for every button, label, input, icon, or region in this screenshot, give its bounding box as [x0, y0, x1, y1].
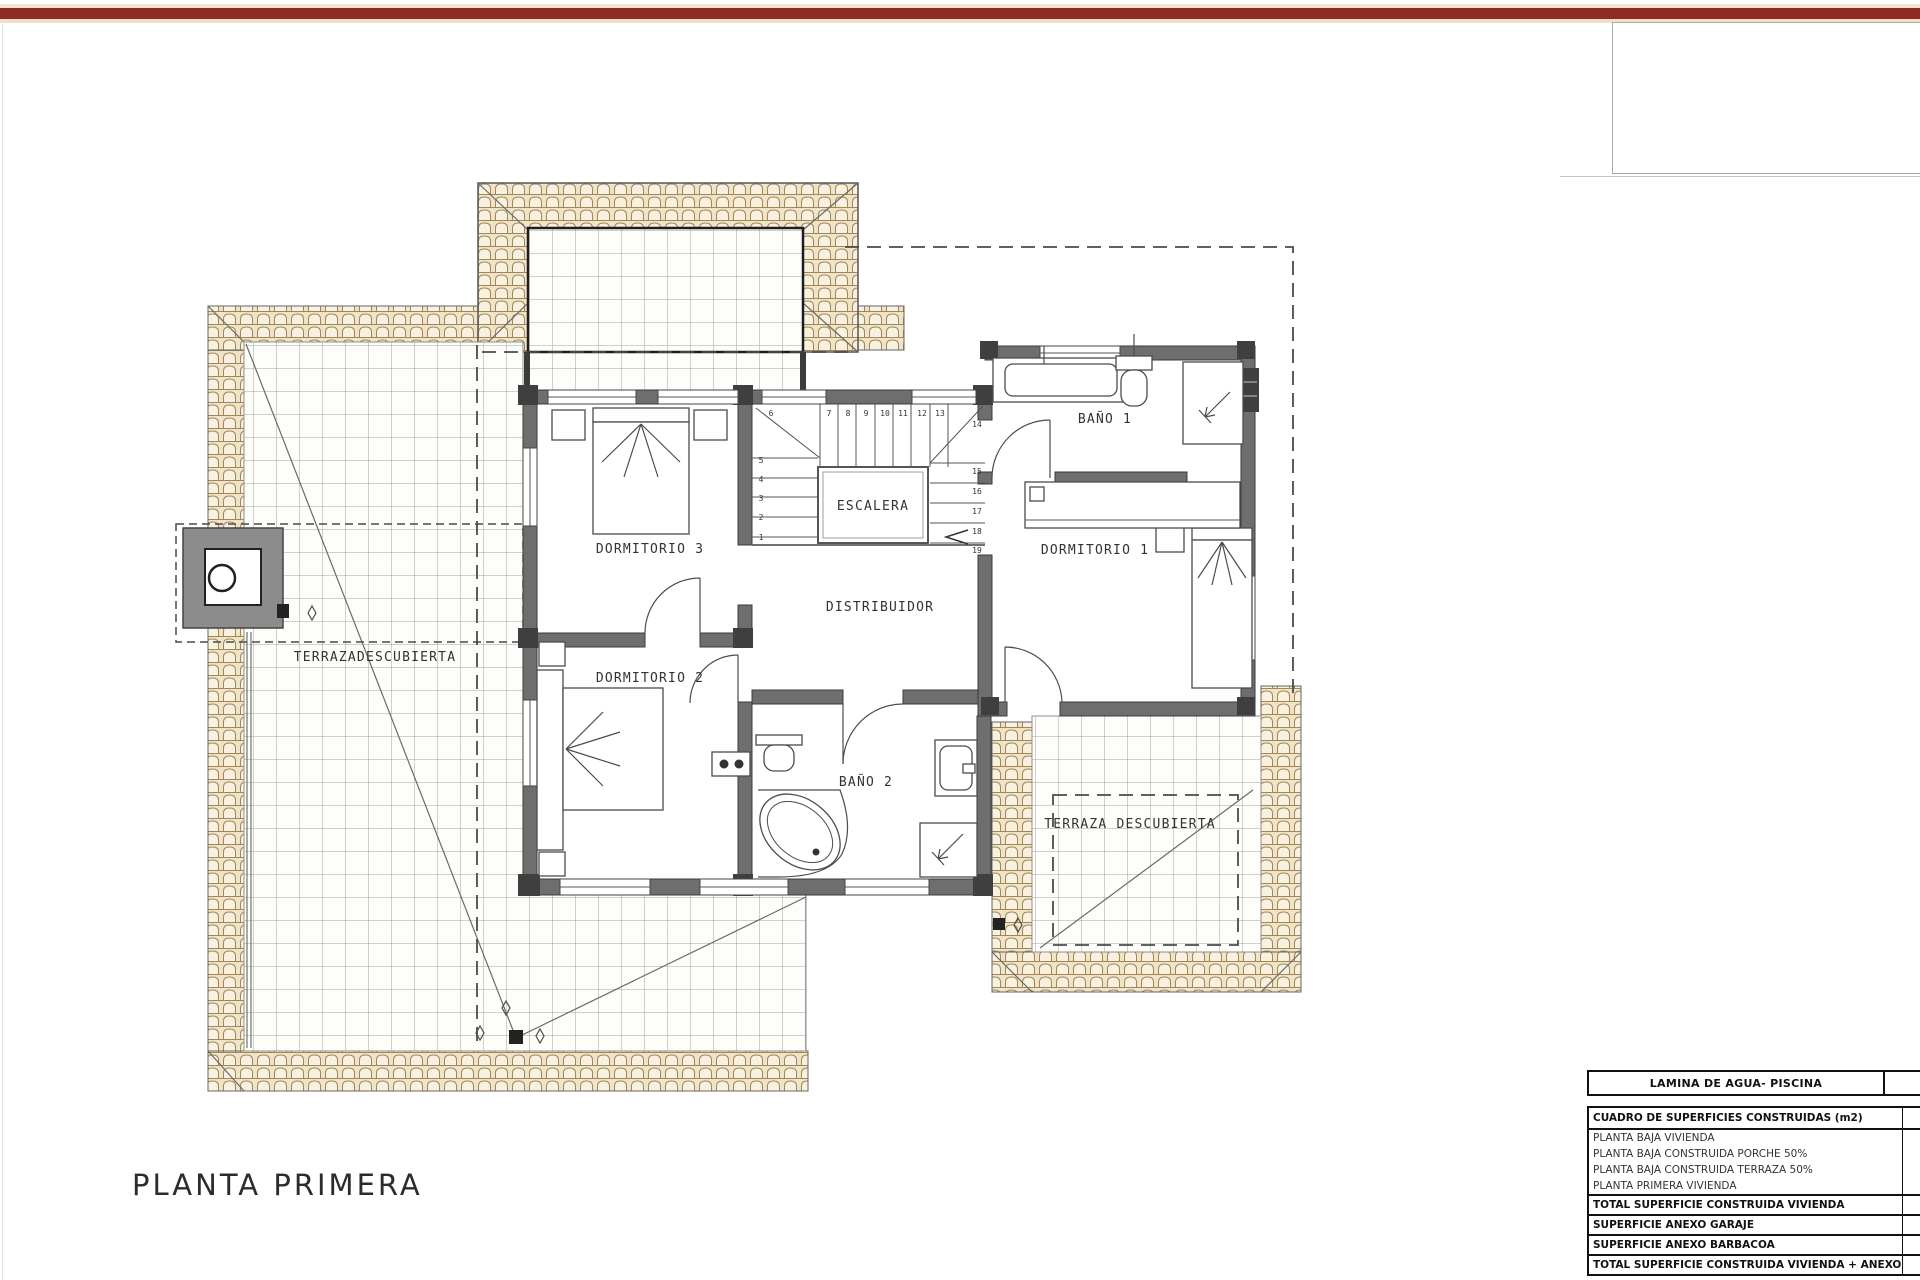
nightstand — [1156, 526, 1184, 552]
step-number: 7 — [827, 409, 832, 418]
table-row-value — [1903, 1195, 1920, 1215]
table-row-value — [1903, 1146, 1920, 1162]
table-row-value — [1903, 1255, 1920, 1275]
step-number: 11 — [898, 409, 908, 418]
pool-surface-table: LAMINA DE AGUA- PISCINA — [1587, 1070, 1920, 1096]
bed-headboard — [1192, 528, 1252, 540]
sink-bowl — [1005, 364, 1117, 396]
built-surfaces-table: CUADRO DE SUPERFICIES CONSTRUIDAS (m2) P… — [1587, 1106, 1920, 1276]
step-number: 8 — [846, 409, 851, 418]
surfaces-header-value — [1903, 1107, 1920, 1129]
table-row-label: PLANTA BAJA VIVIENDA — [1588, 1129, 1903, 1146]
step-number: 16 — [972, 487, 982, 496]
step-number: 5 — [759, 456, 764, 465]
table-row-label: PLANTA BAJA CONSTRUIDA PORCHE 50% — [1588, 1146, 1903, 1162]
staircase: 1 2 3 4 5 6 7 8 9 10 11 12 13 14 15 16 1… — [752, 404, 985, 555]
room-label-dormitorio-2: DORMITORIO 2 — [596, 671, 704, 686]
shower — [920, 823, 977, 877]
room-label-terraza-izquierda: TERRAZADESCUBIERTA — [294, 650, 456, 665]
room-label-dormitorio-1: DORMITORIO 1 — [1041, 543, 1149, 558]
wardrobe — [1025, 482, 1240, 528]
drain-right — [993, 918, 1005, 930]
table-row-label: TOTAL SUPERFICIE CONSTRUIDA VIVIENDA — [1588, 1195, 1903, 1215]
bed — [563, 688, 663, 810]
step-number: 1 — [759, 533, 764, 542]
bathtub — [745, 779, 855, 886]
toilet-bowl — [764, 745, 794, 771]
step-number: 17 — [972, 507, 982, 516]
bed — [593, 422, 689, 534]
pool-table-label: LAMINA DE AGUA- PISCINA — [1588, 1071, 1884, 1095]
table-row-value — [1903, 1129, 1920, 1146]
nightstand — [694, 410, 727, 440]
step-number: 18 — [972, 527, 982, 536]
nightstand — [552, 410, 585, 440]
table-row-value — [1903, 1235, 1920, 1255]
stair-direction-arrow — [946, 530, 968, 544]
flue-circle — [209, 565, 235, 591]
room-label-distribuidor: DISTRIBUIDOR — [826, 600, 934, 615]
step-number: 2 — [759, 513, 764, 522]
table-row-label: PLANTA PRIMERA VIVIENDA — [1588, 1178, 1903, 1195]
nightstand — [539, 852, 565, 876]
step-number: 14 — [972, 420, 982, 429]
toilet-bowl — [1121, 370, 1147, 406]
bed-headboard — [593, 408, 689, 422]
step-number: 9 — [864, 409, 869, 418]
toilet-tank — [756, 735, 802, 745]
page-title: PLANTA PRIMERA — [132, 1168, 423, 1202]
step-number: 3 — [759, 494, 764, 503]
surfaces-header: CUADRO DE SUPERFICIES CONSTRUIDAS (m2) — [1588, 1107, 1903, 1129]
room-label-terraza-derecha: TERRAZA DESCUBIERTA — [1044, 817, 1216, 832]
room-label-bano-2: BAÑO 2 — [839, 774, 893, 790]
appliance — [712, 752, 750, 776]
table-row-label: SUPERFICIE ANEXO BARBACOA — [1588, 1235, 1903, 1255]
step-number: 15 — [972, 467, 982, 476]
table-row-value — [1903, 1215, 1920, 1235]
room-label-bano-1: BAÑO 1 — [1078, 411, 1132, 427]
bed-headboard — [537, 670, 563, 850]
summary-tables: LAMINA DE AGUA- PISCINA CUADRO DE SUPERF… — [1587, 1070, 1920, 1276]
step-number: 12 — [917, 409, 927, 418]
table-row-label: SUPERFICIE ANEXO GARAJE — [1588, 1215, 1903, 1235]
table-row-value — [1903, 1178, 1920, 1195]
table-row-value — [1903, 1162, 1920, 1178]
table-row-label: PLANTA BAJA CONSTRUIDA TERRAZA 50% — [1588, 1162, 1903, 1178]
pool-table-value — [1884, 1071, 1920, 1095]
toilet-tank — [1116, 356, 1152, 370]
step-number: 6 — [769, 409, 774, 418]
nightstand — [539, 642, 565, 666]
room-label-escalera: ESCALERA — [837, 499, 909, 514]
room-label-dormitorio-3: DORMITORIO 3 — [596, 542, 704, 557]
step-number: 19 — [972, 546, 982, 555]
drawing-sheet: { "top_bar": { "color": "#8e2b22", "halo… — [0, 0, 1920, 1280]
table-row-label: TOTAL SUPERFICIE CONSTRUIDA VIVIENDA + A… — [1588, 1255, 1903, 1275]
step-number: 13 — [935, 409, 945, 418]
shower — [1183, 362, 1243, 444]
step-number: 10 — [880, 409, 890, 418]
step-number: 4 — [759, 475, 764, 484]
drain-left — [509, 1030, 523, 1044]
bed — [1192, 540, 1252, 688]
